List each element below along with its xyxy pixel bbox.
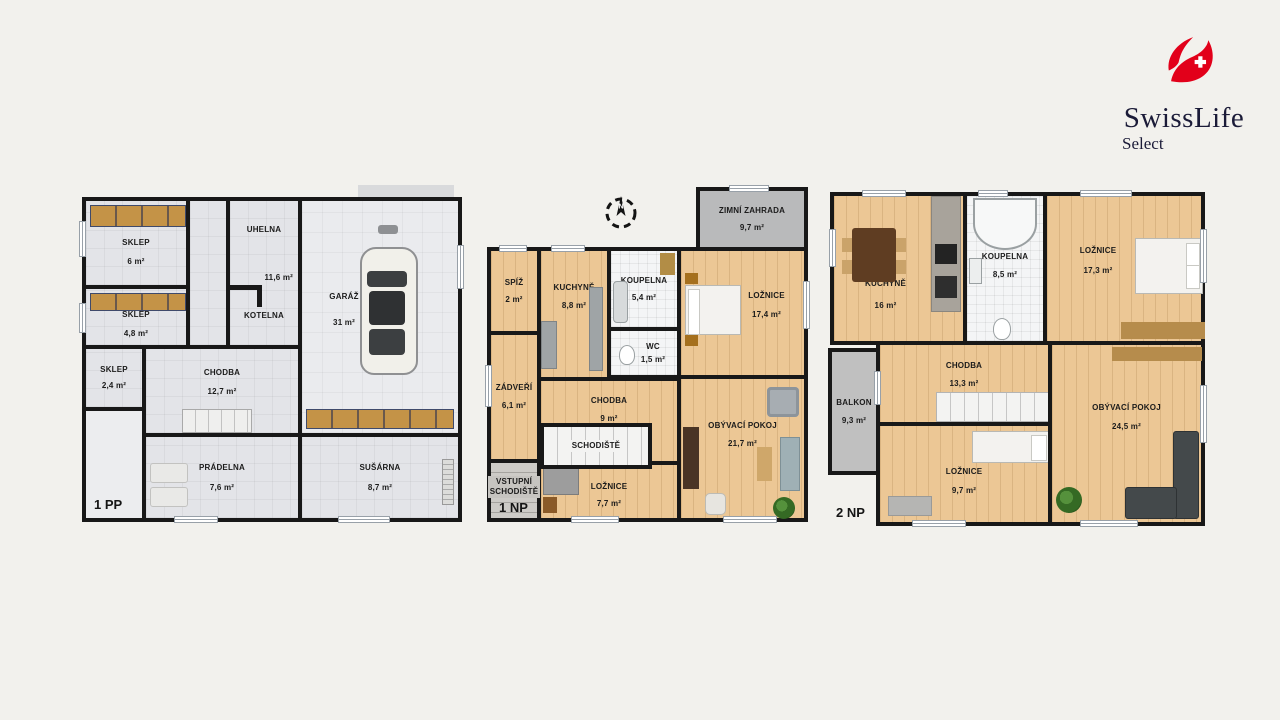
room-sklep-48: SKLEP4,8 m² <box>82 285 190 349</box>
room-area: 6,1 m² <box>502 401 526 411</box>
room-name: CHODBA <box>204 368 240 378</box>
room-area: 21,7 m² <box>728 439 757 449</box>
window-mark <box>862 190 906 197</box>
floorplan-1pp: SKLEP6 m² SKLEP4,8 m² SKLEP2,4 m² 1 PP U… <box>70 185 470 537</box>
room-garaz: GARÁŽ31 m² <box>298 197 462 437</box>
room-area: 24,5 m² <box>1112 422 1141 432</box>
logo-brand-text: SwissLife <box>1118 104 1250 133</box>
floorplan-page: { "logo": { "brand": "SwissLife", "sub":… <box>0 0 1280 720</box>
room-area: 17,3 m² <box>1084 266 1113 276</box>
room-name: WC <box>646 342 660 352</box>
chair <box>842 238 852 252</box>
room-area: 8,7 m² <box>368 483 392 493</box>
room-area: 9,3 m² <box>842 416 866 426</box>
window-mark <box>551 245 585 252</box>
kitchen-counter <box>541 321 557 369</box>
room-sklep-6: SKLEP6 m² <box>82 197 190 289</box>
washer <box>150 463 188 483</box>
room-name: LOŽNICE <box>946 467 983 477</box>
room-sklep-24: SKLEP2,4 m² <box>82 345 146 411</box>
window-mark <box>499 245 527 252</box>
tv-cabinet <box>683 427 699 489</box>
staircase-vstupni: VSTUPNÍ SCHODIŠTĚ 1 NP <box>487 459 541 522</box>
room-kuchyne-2np: KUCHYNĚ16 m² <box>830 192 967 345</box>
window-mark <box>874 371 881 405</box>
nightstand <box>685 335 698 346</box>
room-area: 8,5 m² <box>993 270 1017 280</box>
room-name: PRÁDELNA <box>199 463 245 473</box>
partition-wall <box>257 285 262 307</box>
coffee-table <box>757 447 772 481</box>
room-name: SKLEP <box>122 238 150 248</box>
car <box>360 247 418 375</box>
window-mark <box>978 190 1008 197</box>
dining-table <box>852 228 896 282</box>
room-area: 9,7 m² <box>952 486 976 496</box>
swisslife-select-logo: SwissLife Select <box>1118 28 1250 152</box>
room-area: 16 m² <box>875 301 897 311</box>
window-mark <box>1080 520 1138 527</box>
room-loznice-97: LOŽNICE9,7 m² <box>876 422 1052 526</box>
window-mark <box>723 516 777 523</box>
garage-door-opener <box>378 225 398 234</box>
room-name: GARÁŽ <box>329 292 358 302</box>
room-area: 12,7 m² <box>208 387 237 397</box>
window-mark <box>729 185 769 192</box>
shelf <box>306 409 454 429</box>
toilet <box>993 318 1011 340</box>
car-rear-window <box>369 329 405 355</box>
wardrobe <box>543 467 579 495</box>
room-pradelna: PRÁDELNA7,6 m² <box>142 433 302 522</box>
room-loznice-173: LOŽNICE17,3 m² <box>1043 192 1205 345</box>
room-area: 17,4 m² <box>752 310 781 320</box>
room-balkon: BALKON9,3 m² <box>828 348 880 475</box>
shelf <box>90 293 186 311</box>
window-mark <box>174 516 218 523</box>
room-name: LOŽNICE <box>1080 246 1117 256</box>
sofa <box>780 437 800 491</box>
window-mark <box>79 221 86 257</box>
window-mark <box>1080 190 1132 197</box>
staircase <box>182 409 252 433</box>
window-mark <box>457 245 464 289</box>
room-name: SKLEP <box>100 365 128 375</box>
room-name: CHODBA <box>946 361 982 371</box>
room-name: KOUPELNA <box>982 252 1029 262</box>
cabinet <box>660 253 675 275</box>
room-chodba-1pp: CHODBA12,7 m² <box>142 345 302 437</box>
room-koupelna-2np: KOUPELNA8,5 m² <box>963 192 1047 345</box>
chair <box>896 238 906 252</box>
single-bed <box>972 431 1050 463</box>
plant <box>1056 487 1082 513</box>
room-area: 6 m² <box>127 257 144 267</box>
room-name: SPÍŽ <box>505 278 524 288</box>
room-name: OBÝVACÍ POKOJ <box>708 421 777 431</box>
swisslife-flame-icon <box>1145 28 1223 104</box>
room-obyvaci-1np: OBÝVACÍ POKOJ21,7 m² <box>677 375 808 522</box>
room-loznice-77: LOŽNICE7,7 m² <box>537 461 681 522</box>
chair <box>842 260 852 274</box>
room-loznice-174: LOŽNICE17,4 m² <box>677 247 808 379</box>
room-susarna: SUŠÁRNA8,7 m² <box>298 433 462 522</box>
sideboard <box>1112 347 1202 361</box>
armchair <box>705 493 726 515</box>
room-area: 2,4 m² <box>102 381 126 391</box>
room-name: SUŠÁRNA <box>360 463 401 473</box>
room-area: 4,8 m² <box>124 329 148 339</box>
room-name: ZIMNÍ ZAHRADA <box>719 206 785 216</box>
room-area: 1,5 m² <box>641 355 665 365</box>
window-mark <box>485 365 492 407</box>
car-roof <box>369 291 405 325</box>
room-chodba-2np: CHODBA13,3 m² <box>876 341 1052 426</box>
floorplan-1np: N ZIMNÍ ZAHRADA9,7 m² SPÍŽ2 m² KUCHYNĚ8,… <box>485 185 820 537</box>
kitchen-counter <box>589 287 603 371</box>
window-mark <box>79 303 86 333</box>
radiator <box>442 459 454 505</box>
room-area: 8,8 m² <box>562 301 586 311</box>
floor-label-2np: 2 NP <box>836 505 865 520</box>
floorplan-2np: KUCHYNĚ16 m² KOUPELNA8,5 m² LOŽNICE17,3 … <box>828 185 1216 537</box>
window-mark <box>1200 385 1207 443</box>
window-mark <box>338 516 390 523</box>
stove <box>935 244 957 264</box>
dining-table <box>767 387 799 417</box>
nightstand <box>685 273 698 284</box>
room-kuchyne-1np: KUCHYNĚ8,8 m² <box>537 247 611 381</box>
window-mark <box>912 520 966 527</box>
staircase-schodiste: SCHODIŠTĚ <box>540 423 652 469</box>
room-name: OBÝVACÍ POKOJ <box>1092 403 1161 413</box>
bench <box>1121 322 1205 339</box>
room-area: 9,7 m² <box>740 223 764 233</box>
compass-icon: N <box>601 193 641 233</box>
corner-sofa <box>1125 487 1177 519</box>
room-entry-1pp: 1 PP <box>82 407 146 522</box>
logo-sub-text: Select <box>1122 135 1250 152</box>
bathtub <box>613 281 628 323</box>
room-name: LOŽNICE <box>591 482 628 492</box>
room-name: SCHODIŠTĚ <box>569 440 623 452</box>
room-name: KOTELNA <box>230 311 298 321</box>
double-bed <box>685 285 741 335</box>
room-area: 2 m² <box>505 295 522 305</box>
room-area: 5,4 m² <box>632 293 656 303</box>
room-obyvaci-2np: OBÝVACÍ POKOJ24,5 m² <box>1048 341 1205 526</box>
double-bed <box>1135 238 1203 294</box>
room-spiz: SPÍŽ2 m² <box>487 247 541 335</box>
corridor-strip <box>186 197 230 349</box>
room-area: 13,3 m² <box>950 379 979 389</box>
room-name: LOŽNICE <box>748 291 785 301</box>
room-area: 7,6 m² <box>210 483 234 493</box>
room-name: VSTUPNÍ SCHODIŠTĚ <box>488 476 540 498</box>
chair <box>543 497 557 513</box>
room-zimni-zahrada: ZIMNÍ ZAHRADA9,7 m² <box>696 187 808 251</box>
chair <box>896 260 906 274</box>
window-mark <box>829 229 836 267</box>
floor-label-1pp: 1 PP <box>94 497 122 512</box>
shelf <box>90 205 186 227</box>
corner-bathtub <box>973 198 1037 250</box>
window-mark <box>803 281 810 329</box>
room-name: CHODBA <box>591 396 627 406</box>
room-uhelna-kotelna: UHELNA 11,6 m² KOTELNA <box>226 197 302 349</box>
window-mark <box>571 516 619 523</box>
room-koupelna-1np: KOUPELNA5,4 m² <box>607 247 681 331</box>
washer <box>150 487 188 507</box>
floor-label-1np: 1 NP <box>499 500 528 515</box>
room-name: ZÁDVEŘÍ <box>496 383 533 393</box>
svg-text:N: N <box>618 204 623 211</box>
room-area: 7,7 m² <box>597 499 621 509</box>
car-windshield <box>367 271 407 287</box>
window-mark <box>1200 229 1207 283</box>
room-area: 31 m² <box>333 318 355 328</box>
room-zadveri: ZÁDVEŘÍ6,1 m² <box>487 331 541 463</box>
room-name: BALKON <box>836 398 871 408</box>
room-name: SKLEP <box>122 310 150 320</box>
room-name: UHELNA <box>230 225 298 235</box>
rug <box>888 496 932 516</box>
toilet <box>619 345 635 365</box>
room-wc: WC1,5 m² <box>607 327 681 379</box>
oven <box>935 276 957 298</box>
staircase <box>936 392 1050 422</box>
sink <box>969 258 982 284</box>
room-area: 11,6 m² <box>264 273 293 283</box>
